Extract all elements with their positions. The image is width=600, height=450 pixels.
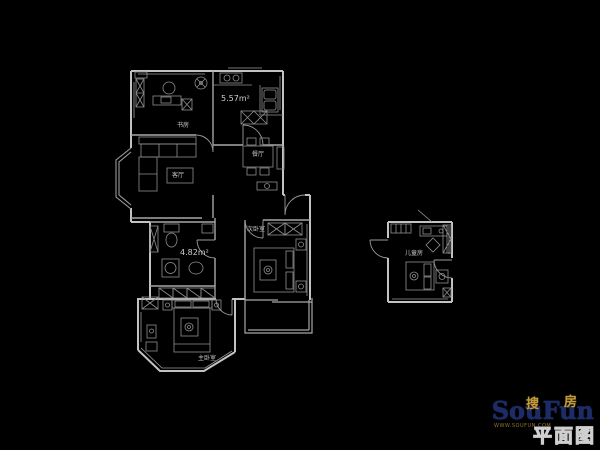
living-furniture — [139, 137, 196, 191]
soufun-cn-sou-icon: 搜 — [526, 393, 539, 412]
secondary-bedroom-furniture — [254, 223, 306, 292]
basin-icon — [189, 262, 203, 274]
master-bedroom-furniture — [142, 297, 221, 352]
door-arcs — [196, 125, 452, 315]
bay-window — [116, 148, 131, 209]
dining-label: 餐厅 — [252, 151, 264, 158]
secondary-bedroom-label: 次卧室 — [247, 226, 265, 233]
soufun-watermark: SouFun 搜 房 WWW.SOUFUN.COM 平面图 — [486, 396, 598, 448]
sofa — [139, 137, 196, 144]
chair-icon — [426, 238, 440, 252]
floor-plan-caption: 平面图 — [533, 421, 596, 448]
floor-plan-drawing — [0, 0, 600, 450]
floor-plan-page: 书房 5.57m² 餐厅 客厅 4.82m² 次卧室 主卧室 儿童房 SouFu… — [0, 0, 600, 450]
fridge-icon — [241, 111, 267, 124]
closet-row — [159, 288, 215, 298]
kids-room-label: 儿童房 — [405, 250, 423, 257]
study-label: 书房 — [177, 122, 189, 129]
tv-icon — [147, 325, 156, 338]
kitchen-area-label: 5.57m² — [221, 94, 250, 103]
dining-furniture — [243, 138, 284, 190]
living-label: 客厅 — [172, 172, 184, 179]
toilet-icon — [164, 224, 179, 232]
balcony — [245, 298, 312, 333]
washer-icon — [162, 259, 179, 277]
bathroom-area-label: 4.82m² — [180, 248, 209, 257]
kids-room-furniture — [391, 224, 451, 297]
furniture — [135, 72, 451, 352]
exterior-walls — [131, 71, 310, 371]
soufun-cn-fang-icon: 房 — [564, 391, 577, 410]
study-furniture — [135, 72, 207, 110]
master-bedroom-label: 主卧室 — [198, 355, 216, 362]
